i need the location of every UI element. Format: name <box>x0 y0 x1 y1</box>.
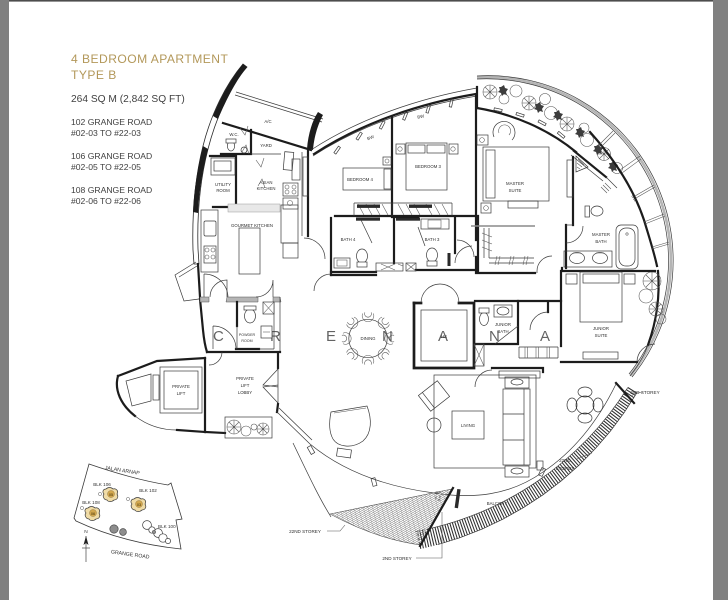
svg-text:BLK 102: BLK 102 <box>139 488 157 493</box>
svg-text:HS: HS <box>441 334 447 339</box>
svg-text:264 SQ M (2,842 SQ FT): 264 SQ M (2,842 SQ FT) <box>71 94 185 105</box>
svg-text:LOBBY: LOBBY <box>238 390 252 395</box>
svg-text:4 BEDROOM APARTMENT: 4 BEDROOM APARTMENT <box>71 52 228 66</box>
svg-text:C: C <box>213 328 224 345</box>
svg-text:2ND STOREY: 2ND STOREY <box>382 556 411 561</box>
svg-text:W.C.: W.C. <box>229 132 238 137</box>
svg-text:KITCHEN: KITCHEN <box>257 186 276 191</box>
svg-text:JUNIOR: JUNIOR <box>593 326 609 331</box>
svg-text:DINING: DINING <box>360 336 376 341</box>
svg-text:102 GRANGE ROAD: 102 GRANGE ROAD <box>71 117 152 127</box>
svg-text:PRIVATE: PRIVATE <box>172 384 190 389</box>
svg-text:LIVING: LIVING <box>461 423 476 428</box>
svg-text:#02-05 TO #22-05: #02-05 TO #22-05 <box>71 162 141 172</box>
svg-text:STOREY: STOREY <box>556 466 575 471</box>
svg-text:BATH 4: BATH 4 <box>341 237 356 242</box>
svg-text:UTILITY: UTILITY <box>215 182 231 187</box>
svg-text:PRIVATE: PRIVATE <box>236 376 254 381</box>
svg-text:POWDER: POWDER <box>239 333 256 337</box>
svg-text:BEDROOM 4: BEDROOM 4 <box>347 177 373 182</box>
svg-text:A/C: A/C <box>264 119 271 124</box>
svg-text:LIFT: LIFT <box>177 391 186 396</box>
svg-text:#02-03 TO #22-03: #02-03 TO #22-03 <box>71 128 141 138</box>
svg-text:MASTER: MASTER <box>506 181 524 186</box>
svg-text:ROOM: ROOM <box>241 339 252 343</box>
svg-text:2ND STOREY: 2ND STOREY <box>630 390 659 395</box>
svg-text:BLK 106: BLK 106 <box>93 482 111 487</box>
svg-text:BALCONY: BALCONY <box>487 501 508 506</box>
svg-text:YARD: YARD <box>260 143 272 148</box>
svg-text:E: E <box>326 328 336 345</box>
svg-text:06: 06 <box>91 512 95 516</box>
svg-text:SUITE: SUITE <box>509 188 522 193</box>
svg-text:A: A <box>540 328 550 345</box>
svg-text:BLK 100: BLK 100 <box>158 524 176 529</box>
svg-text:JUNIOR: JUNIOR <box>495 322 511 327</box>
svg-text:108 GRANGE ROAD: 108 GRANGE ROAD <box>71 185 152 195</box>
svg-text:SUITE: SUITE <box>595 333 608 338</box>
svg-text:22ND STOREY: 22ND STOREY <box>289 529 321 534</box>
svg-text:GOURMET KITCHEN: GOURMET KITCHEN <box>231 223 273 228</box>
svg-text:BATH: BATH <box>595 239 606 244</box>
svg-text:ROOM: ROOM <box>216 188 230 193</box>
svg-text:22ND: 22ND <box>559 458 571 463</box>
svg-text:106 GRANGE ROAD: 106 GRANGE ROAD <box>71 151 152 161</box>
svg-text:N: N <box>84 529 88 535</box>
svg-text:BATH: BATH <box>497 329 508 334</box>
svg-text:BATH 3: BATH 3 <box>425 237 440 242</box>
svg-text:MASTER: MASTER <box>592 232 610 237</box>
svg-text:LIFT: LIFT <box>241 383 250 388</box>
svg-text:#02-06 TO #22-06: #02-06 TO #22-06 <box>71 196 141 206</box>
svg-text:03: 03 <box>137 503 141 507</box>
svg-text:05: 05 <box>109 493 113 497</box>
svg-text:ASIAN: ASIAN <box>260 180 273 185</box>
svg-text:BEDROOM 3: BEDROOM 3 <box>415 164 441 169</box>
svg-text:BLK 108: BLK 108 <box>82 500 100 505</box>
svg-text:TYPE B: TYPE B <box>71 68 117 82</box>
